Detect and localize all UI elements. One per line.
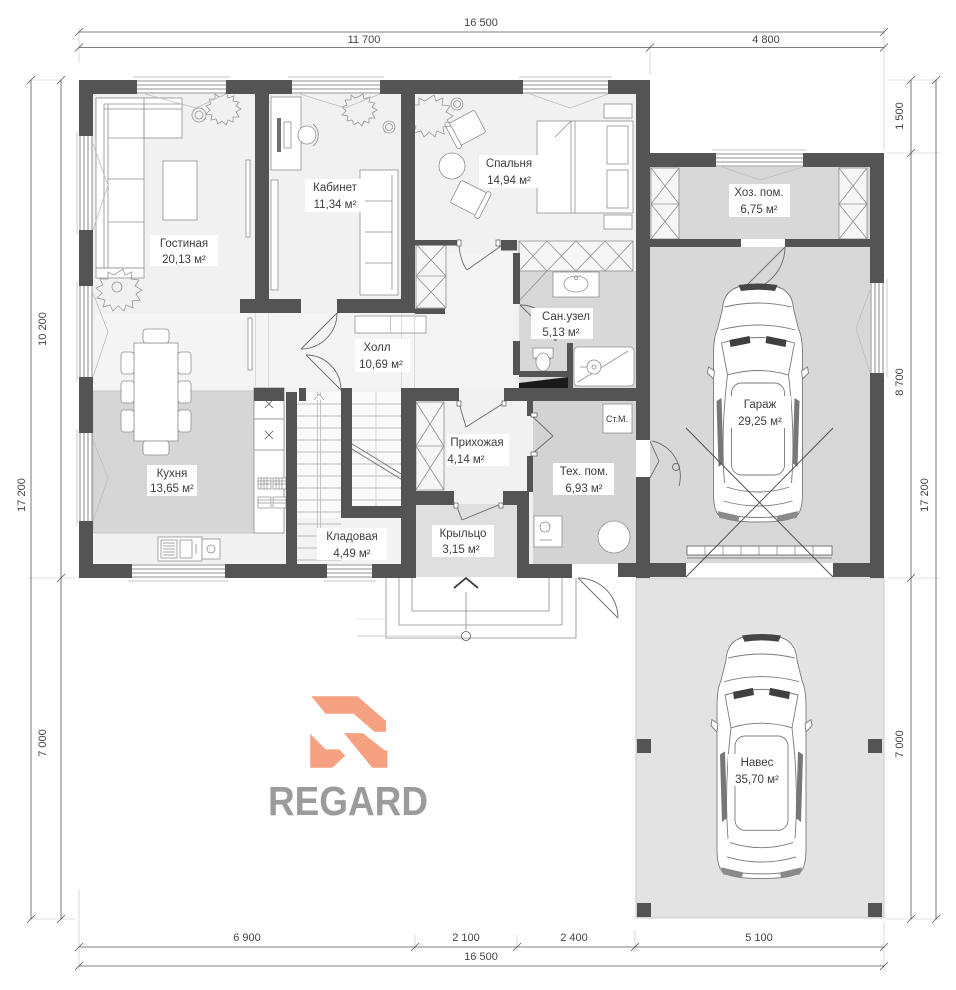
svg-text:11,34 м²: 11,34 м²: [314, 199, 357, 211]
svg-text:35,70 м²: 35,70 м²: [735, 774, 779, 786]
svg-text:Тех. пом.: Тех. пом.: [560, 466, 608, 478]
svg-text:Хоз. пом.: Хоз. пом.: [734, 187, 783, 199]
svg-text:Холл: Холл: [363, 342, 390, 354]
svg-text:3,15 м²: 3,15 м²: [442, 544, 479, 556]
svg-text:16 500: 16 500: [464, 17, 498, 29]
svg-text:6 900: 6 900: [233, 932, 261, 944]
svg-text:5 100: 5 100: [745, 932, 773, 944]
svg-text:6,93 м²: 6,93 м²: [565, 483, 602, 495]
svg-text:REGARD: REGARD: [268, 778, 428, 824]
svg-text:16 500: 16 500: [464, 951, 498, 963]
svg-text:7 000: 7 000: [37, 729, 49, 757]
svg-text:Прихожая: Прихожая: [450, 437, 503, 449]
svg-text:7 000: 7 000: [894, 730, 906, 758]
svg-text:Кабинет: Кабинет: [313, 182, 357, 194]
svg-text:4 800: 4 800: [752, 34, 780, 46]
svg-text:20,13 м²: 20,13 м²: [162, 254, 206, 266]
svg-text:6,75 м²: 6,75 м²: [740, 204, 777, 216]
svg-text:11 700: 11 700: [348, 34, 381, 46]
svg-text:29,25 м²: 29,25 м²: [738, 416, 782, 428]
svg-text:Кладовая: Кладовая: [326, 531, 378, 543]
svg-text:Сан.узел: Сан.узел: [542, 311, 590, 323]
svg-text:1 500: 1 500: [894, 102, 906, 130]
svg-text:2 400: 2 400: [560, 932, 588, 944]
svg-text:Гостиная: Гостиная: [160, 238, 208, 250]
svg-text:Спальня: Спальня: [486, 158, 532, 170]
svg-text:Навес: Навес: [741, 757, 774, 769]
svg-text:14,94 м²: 14,94 м²: [487, 175, 531, 187]
svg-text:17 200: 17 200: [16, 478, 28, 512]
svg-text:Ст.М.: Ст.М.: [606, 414, 628, 424]
svg-text:Кухня: Кухня: [157, 468, 188, 480]
svg-text:2 100: 2 100: [452, 932, 480, 944]
svg-text:13,65 м²: 13,65 м²: [150, 483, 194, 495]
svg-text:Гараж: Гараж: [744, 399, 777, 411]
svg-text:4,14 м²: 4,14 м²: [447, 454, 484, 466]
svg-text:Крыльцо: Крыльцо: [440, 528, 487, 540]
svg-text:17 200: 17 200: [919, 478, 931, 512]
svg-text:8 700: 8 700: [894, 368, 906, 396]
svg-text:4,49 м²: 4,49 м²: [333, 548, 370, 560]
svg-text:5,13 м²: 5,13 м²: [542, 327, 579, 339]
svg-text:10,69 м²: 10,69 м²: [359, 359, 403, 371]
svg-text:10 200: 10 200: [37, 312, 49, 346]
